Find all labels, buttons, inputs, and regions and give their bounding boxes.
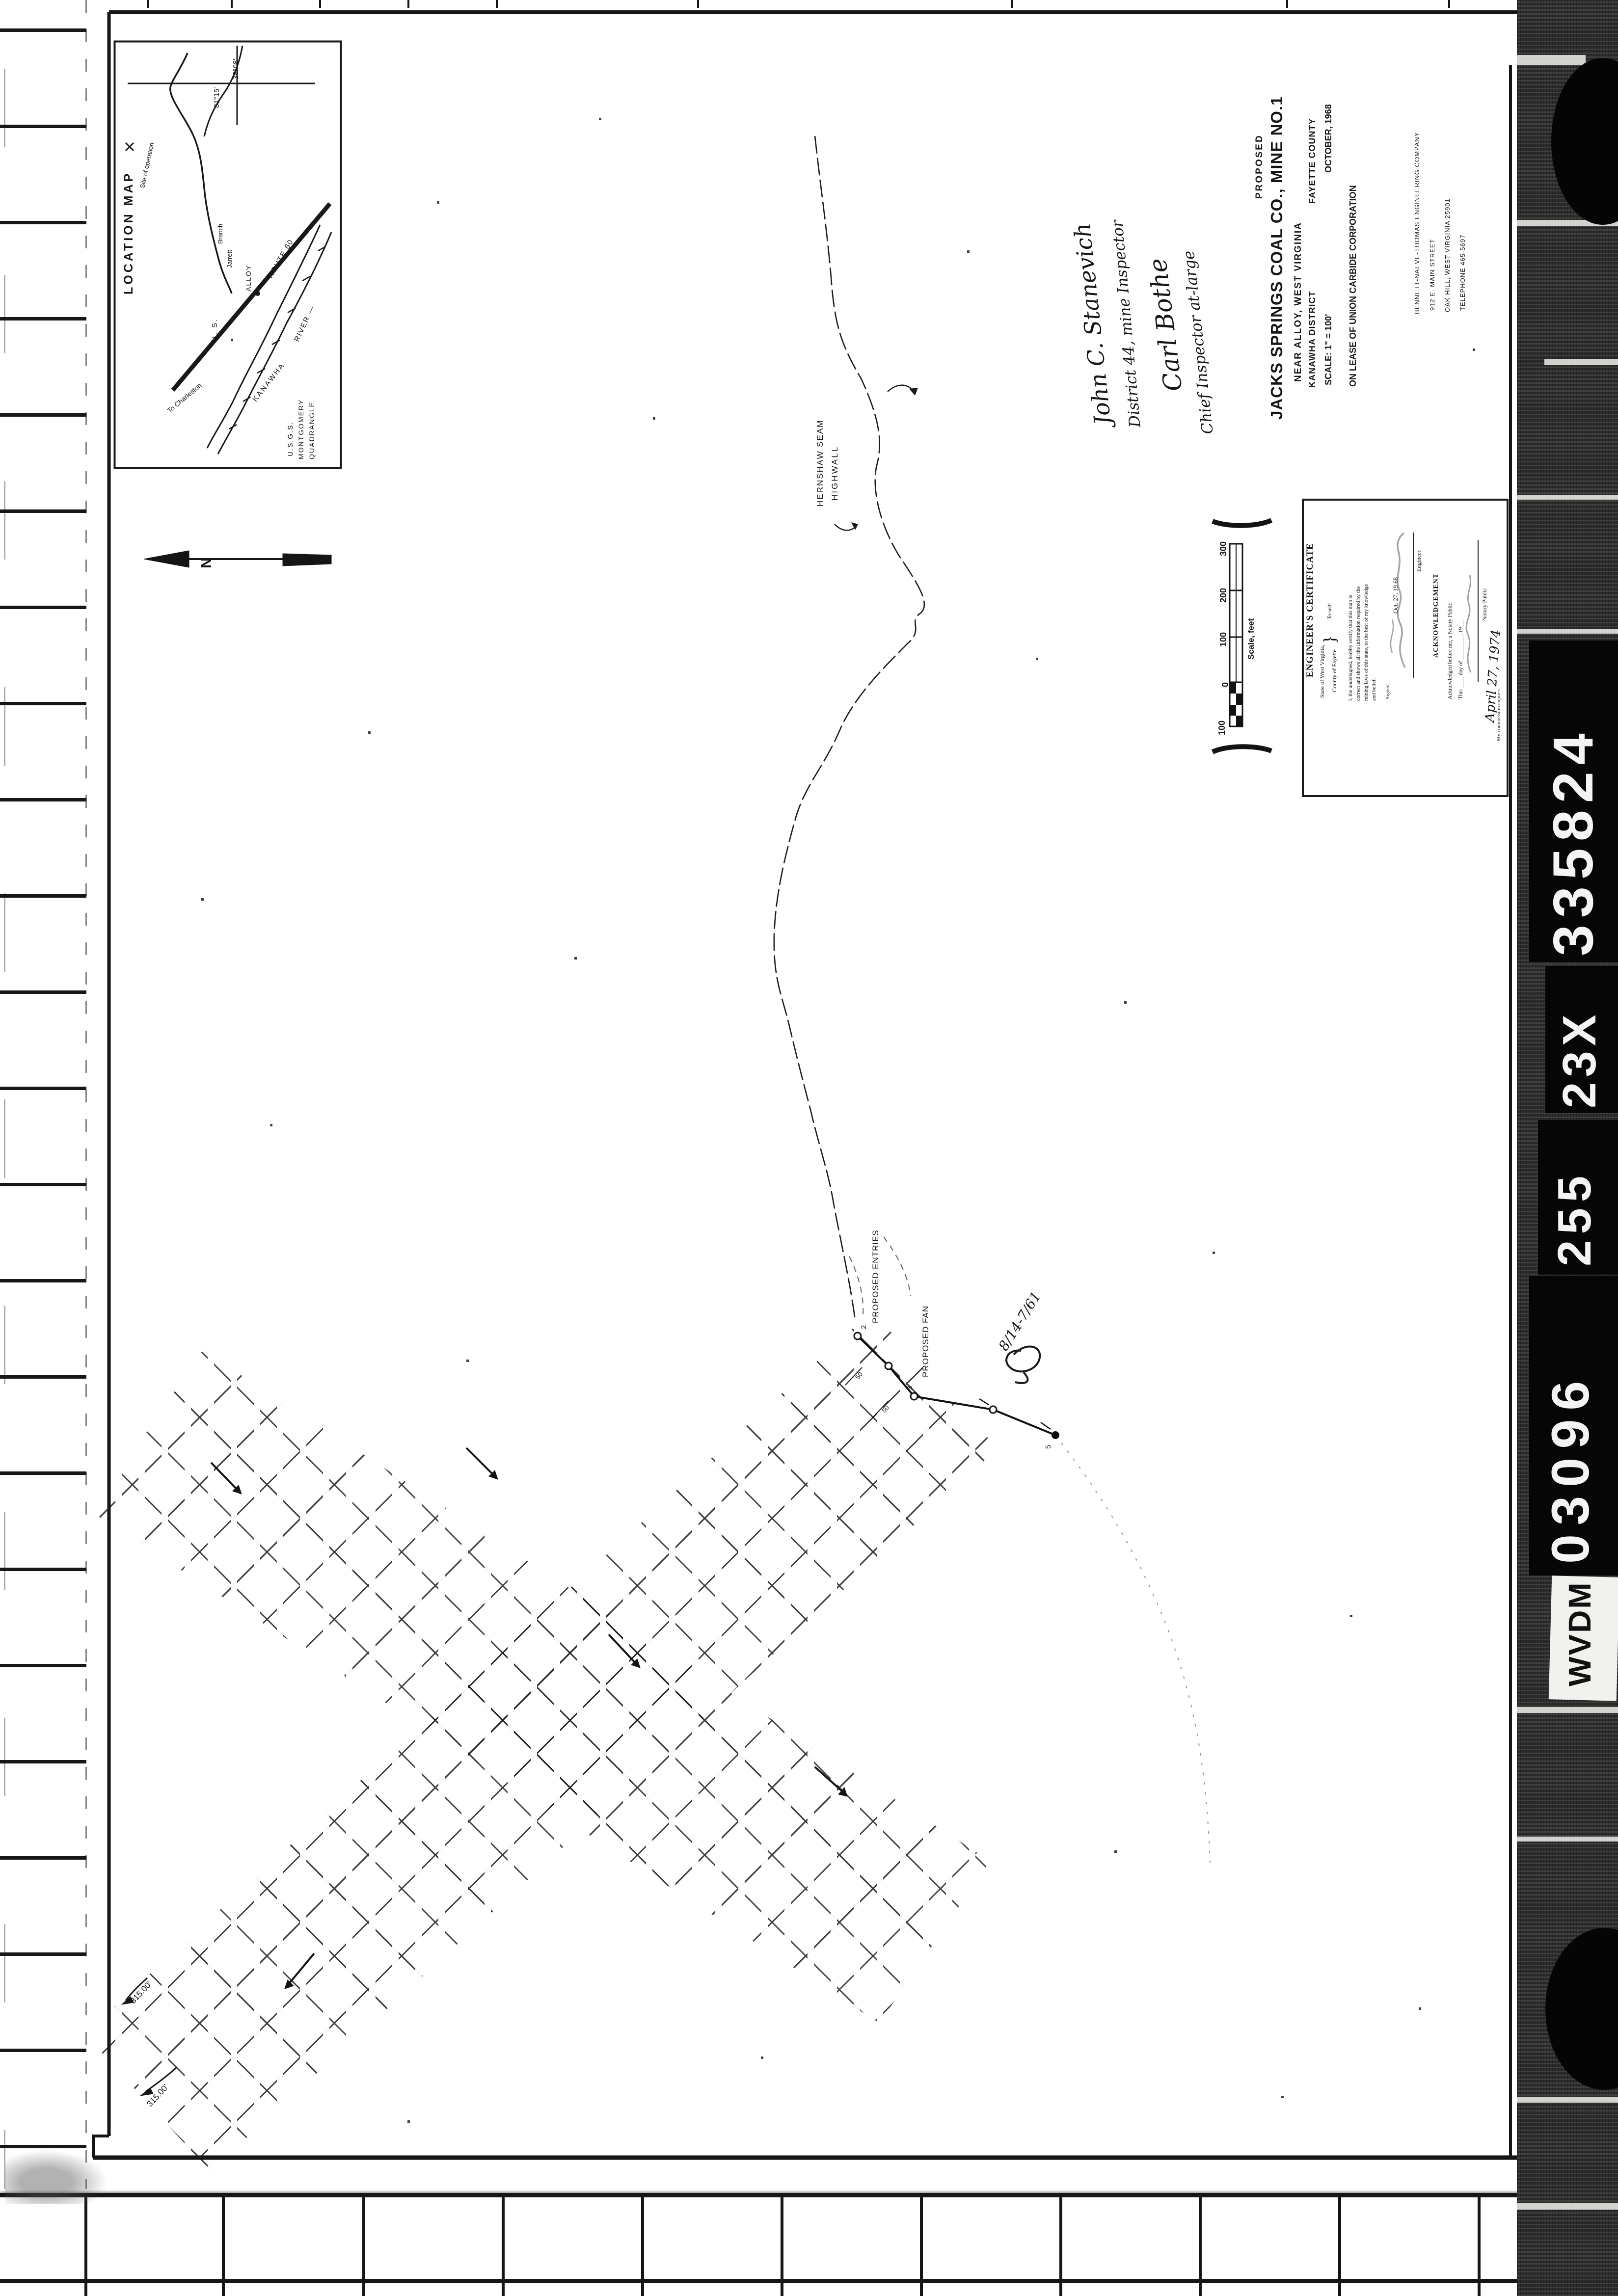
film-code-335824: 335824	[1545, 726, 1602, 956]
cert-date-line: Oct. 27, 19 68	[1392, 577, 1399, 614]
cert-body-1: I, the undersigned, hereby certify that …	[1348, 595, 1353, 701]
handwritten-date-note: 8/14-7/61	[997, 1289, 1043, 1353]
film-frame-gap	[1517, 55, 1586, 65]
film-frame-gap	[1517, 629, 1618, 634]
film-bottom-rule-2	[0, 2279, 1618, 2283]
film-bottom-divider	[1478, 2193, 1481, 2296]
scalebar-caption: Scale, feet	[1247, 618, 1255, 660]
inset-quad-label-1: U.S.G.S.	[287, 422, 294, 456]
film-top-tick	[1448, 0, 1450, 8]
scalebar-tick-100: 100	[1219, 632, 1228, 647]
film-frame-gap	[1517, 2203, 1618, 2210]
film-frame-gap	[1517, 2097, 1618, 2103]
highwall-line	[774, 136, 924, 1320]
film-frame-gap	[1517, 495, 1618, 500]
film-top-tick	[1011, 0, 1013, 8]
proposed-fan-label: PROPOSED FAN	[921, 1306, 930, 1377]
film-bottom-divider	[502, 2193, 505, 2296]
north-label: N	[199, 558, 214, 568]
inset-quad-label-3: QUADRANGLE	[308, 401, 315, 459]
film-left-edge-line	[4, 69, 5, 2189]
film-code-23x: 23X	[1556, 1010, 1603, 1108]
inset-road-route-label: ROUTE 60	[267, 238, 295, 280]
film-top-tick	[496, 0, 498, 8]
film-sprocket-bar	[0, 1375, 86, 1379]
film-sprocket-bar	[0, 2049, 86, 2052]
film-bottom-divider	[1199, 2193, 1202, 2296]
chief-signature: Carl Bothe	[1145, 257, 1186, 393]
film-top-ticks	[0, 0, 1618, 10]
corner-smudge	[5, 2150, 108, 2204]
film-left-sprocket-column	[0, 0, 88, 2296]
north-arrow	[144, 551, 331, 567]
firm-street: 912 E. MAIN STREET	[1429, 239, 1435, 311]
film-top-tick	[319, 0, 321, 8]
film-sprocket-bar	[0, 2145, 86, 2148]
film-frame-gap	[1544, 359, 1618, 365]
inset-branch-label-1: Jarrett	[226, 250, 233, 268]
film-frame-gap	[1517, 1707, 1618, 1713]
inset-river-label-1: KANAWHA	[251, 361, 286, 403]
film-top-tick	[231, 0, 233, 8]
film-bottom-grid	[0, 2160, 1618, 2296]
notary-signature-line	[1478, 540, 1479, 682]
inset-road-us-label: U. S.	[211, 318, 218, 342]
inset-site-label: Site of operation	[139, 142, 155, 188]
proposed-entries-label: PROPOSED ENTRIES	[871, 1229, 880, 1323]
film-sprocket-bar	[0, 1760, 86, 1763]
film-bottom-divider	[1059, 2193, 1062, 2296]
firm-phone: TELEPHONE 465-5697	[1459, 235, 1466, 311]
film-bottom-divider	[84, 2193, 87, 2296]
highwall-label: HIGHWALL	[831, 446, 839, 501]
scalebar-tick-0: 0	[1221, 682, 1230, 687]
cert-signed-label: Signed	[1385, 684, 1391, 699]
film-code-03096: 03096	[1544, 1372, 1597, 1564]
inset-lat-label: 38°08'	[232, 59, 240, 80]
engineer-signature-line	[1413, 533, 1414, 678]
film-sprocket-bar	[0, 1664, 86, 1667]
film-sprocket-bar	[0, 1279, 86, 1282]
film-sprocket-bar	[0, 1471, 86, 1475]
film-bottom-divider	[781, 2193, 783, 2296]
inset-quad-label-2: MONTGOMERY	[297, 399, 304, 459]
film-sprocket-bar	[0, 1568, 86, 1571]
film-left-divider	[85, 0, 87, 2189]
cert-brace: }	[1321, 636, 1338, 644]
cert-towit: To-wit:	[1326, 603, 1332, 619]
cert-engineer-label: Engineer	[1416, 551, 1422, 572]
film-sprocket-bar	[0, 1183, 86, 1186]
title-date: OCTOBER, 1968	[1324, 104, 1333, 173]
film-reel-label-text: WVDM	[1564, 1581, 1595, 1686]
film-sprocket-bar	[0, 1952, 86, 1956]
title-proposed: PROPOSED	[1255, 134, 1264, 199]
film-top-tick	[407, 0, 409, 8]
film-sprocket-bar	[0, 1856, 86, 1860]
scalebar-tick-300: 300	[1219, 541, 1228, 556]
film-sprocket-bar	[0, 28, 86, 32]
film-top-tick	[147, 0, 149, 8]
film-sprocket-bar	[0, 125, 86, 128]
film-sprocket-bar	[0, 798, 86, 801]
cert-body-3: mining laws of this state, to the best o…	[1364, 584, 1369, 701]
film-sprocket-bar	[0, 702, 86, 705]
cert-state: State of West Virginia,	[1319, 645, 1325, 698]
chief-title: Chief Inspector at-large	[1182, 250, 1216, 435]
title-scale: SCALE: 1" = 100'	[1324, 314, 1333, 385]
cert-body-4: and belief.	[1372, 678, 1377, 701]
film-sprocket-bar	[0, 509, 86, 513]
cert-heading: ENGINEER'S CERTIFICATE	[1305, 543, 1315, 677]
cert-commission: My commission expires	[1496, 689, 1502, 741]
film-bottom-divider	[362, 2193, 365, 2296]
film-bottom-divider	[1338, 2193, 1341, 2296]
film-sprocket-bar	[0, 221, 86, 224]
firm-city: OAK HILL, WEST VIRGINIA 25901	[1444, 198, 1451, 312]
title-main: JACKS SPRINGS COAL CO., MINE NO.1	[1268, 96, 1285, 420]
inset-to-charleston-label: To Charleston	[166, 381, 203, 414]
handwritten-initials-scribble	[1006, 1346, 1040, 1383]
firm-name: BENNETT-NAEVE-THOMAS ENGINEERING COMPANY	[1414, 132, 1420, 314]
cert-notary-label: Notary Public	[1482, 588, 1487, 621]
film-bottom-divider	[920, 2193, 923, 2296]
title-county: FAYETTE COUNTY	[1308, 118, 1317, 204]
inset-town-label: ALLOY	[245, 265, 252, 292]
title-near: NEAR ALLOY, WEST VIRGINIA	[1294, 222, 1303, 382]
film-sprocket-bar	[0, 1087, 86, 1090]
seam-label: HERNSHAW SEAM	[816, 420, 824, 507]
station-3-label: 3	[906, 1386, 914, 1390]
film-bottom-rule-1	[0, 2193, 1618, 2197]
film-sprocket-bar	[0, 317, 86, 320]
scalebar-tick-200: 200	[1219, 588, 1228, 603]
inspector-title: District 44, mine Inspector	[1110, 219, 1143, 428]
film-sprocket-bar	[0, 894, 86, 898]
title-district: KANAWHA DISTRICT	[1308, 291, 1317, 388]
cert-ack-heading: ACKNOWLEDGEMENT	[1433, 573, 1440, 658]
film-sprocket-bar	[0, 990, 86, 994]
film-code-255: 255	[1551, 1170, 1598, 1266]
station-5-label: 5	[1045, 1445, 1052, 1449]
cert-body-2: correct and shows all the information re…	[1356, 587, 1361, 701]
inspector-signature: John C. Stanevich	[1071, 222, 1114, 426]
cert-ack-line-1: Acknowledged before me, a Notary Public	[1448, 603, 1454, 699]
title-lease: ON LEASE OF UNION CARBIDE CORPORATION	[1348, 185, 1357, 387]
film-bottom-divider	[641, 2193, 644, 2296]
film-sprocket-bar	[0, 413, 86, 417]
inset-lon-label: 81°15'	[213, 87, 220, 108]
scalebar-tick-100b: 100	[1217, 721, 1226, 735]
film-bottom-divider	[222, 2193, 225, 2296]
station-2-label: 2	[860, 1325, 867, 1329]
cert-ack-line-2: This ____ day of ________ , 19 __	[1458, 620, 1464, 699]
film-top-tick	[697, 0, 699, 8]
film-top-tick	[1286, 0, 1288, 8]
film-sprocket-bar	[0, 606, 86, 609]
inset-title: LOCATION MAP	[123, 171, 135, 294]
cert-county: County of Fayette	[1331, 649, 1337, 692]
inset-branch-label-2: Branch	[217, 224, 223, 244]
film-frame-gap	[1517, 1837, 1618, 1842]
inset-river-label-2: RIVER —	[293, 304, 316, 343]
microfilm-scan-page: { "film": { "codes": ["335824", "23X", "…	[0, 0, 1618, 2296]
